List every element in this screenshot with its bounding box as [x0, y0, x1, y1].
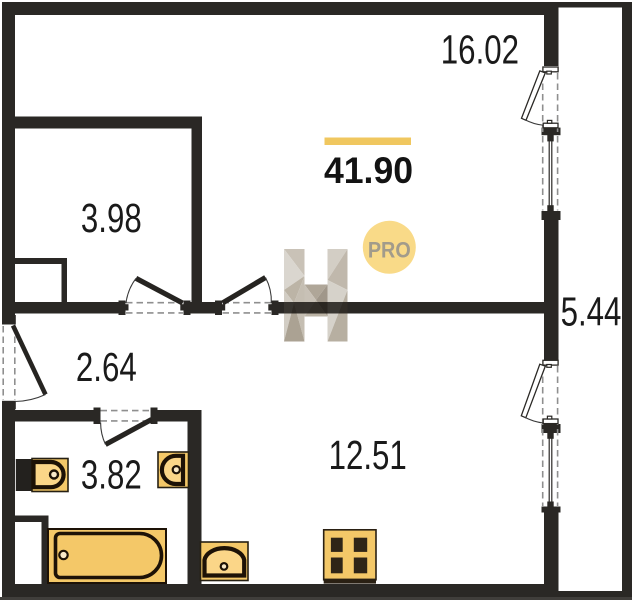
svg-text:41.90: 41.90 [324, 149, 413, 191]
svg-text:2.64: 2.64 [76, 344, 137, 390]
svg-text:3.82: 3.82 [81, 451, 142, 497]
svg-text:PRO: PRO [368, 238, 411, 262]
svg-text:12.51: 12.51 [329, 432, 407, 478]
svg-text:16.02: 16.02 [441, 27, 519, 73]
svg-text:3.98: 3.98 [81, 195, 142, 241]
svg-text:5.44: 5.44 [561, 289, 622, 335]
